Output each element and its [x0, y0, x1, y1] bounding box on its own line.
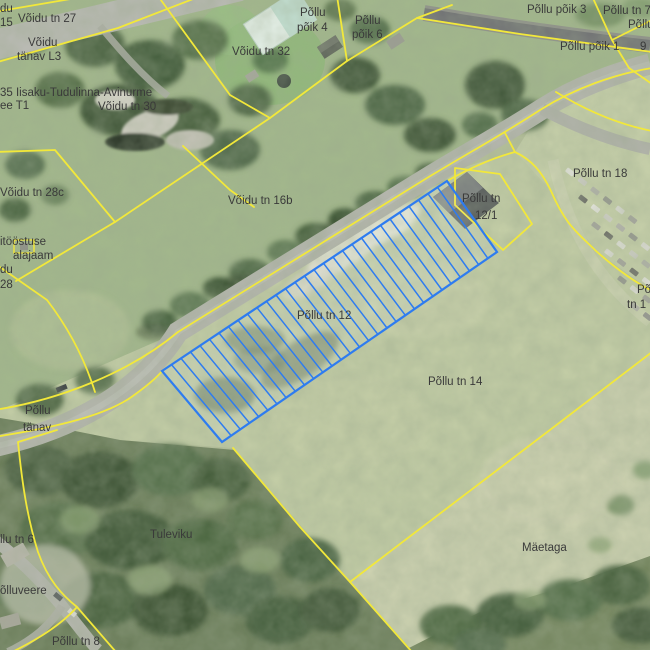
- map-viewport[interactable]: du15Võidu tn 27Võidutänav L335 Iisaku-Tu…: [0, 0, 650, 650]
- aerial-cadastral-map[interactable]: du15Võidu tn 27Võidutänav L335 Iisaku-Tu…: [0, 0, 650, 650]
- map-label: du: [0, 264, 13, 276]
- map-label: Põllu tn 7: [603, 5, 650, 17]
- map-label: 35 Iisaku-Tudulinna-Avinurme: [0, 87, 152, 99]
- map-label: Põllu: [25, 405, 51, 417]
- map-label: Põllu tn 8: [52, 636, 100, 648]
- map-label: Võidu tn 16b: [228, 195, 293, 207]
- map-label: põik 6: [352, 29, 383, 41]
- map-label: Põllu tn 14: [428, 376, 483, 388]
- map-label: Põllu tn 12: [297, 310, 351, 322]
- map-label: Mäetaga: [522, 542, 567, 554]
- map-label: Võidu tn 28c: [0, 187, 64, 199]
- map-label: Põllu põik 1: [560, 41, 619, 53]
- map-label: du: [0, 3, 13, 15]
- map-label: Tuleviku: [150, 529, 192, 541]
- map-label: llu tn 6: [0, 534, 34, 546]
- map-label: tänav L3: [17, 51, 61, 63]
- map-label: Võidu tn 30: [98, 101, 156, 113]
- map-label: Võidu tn 27: [18, 13, 76, 25]
- map-label: Põllu põik 3: [527, 4, 586, 16]
- map-label: Põllu tn: [462, 193, 500, 205]
- map-label: õlluveere: [0, 585, 47, 597]
- map-label: põik 4: [297, 22, 328, 34]
- map-label: Põllu: [300, 7, 326, 19]
- map-label: tänav: [23, 422, 51, 434]
- map-label: itööstuse: [0, 236, 46, 248]
- map-label: alajaam: [13, 250, 53, 262]
- map-label: Põ: [637, 284, 650, 296]
- map-label: Põllu: [355, 15, 381, 27]
- map-label: tn 1: [627, 299, 646, 311]
- map-label: Põllu tn 18: [573, 168, 627, 180]
- map-label: 12/1: [475, 210, 497, 222]
- map-label: 28: [0, 279, 13, 291]
- map-label: 9: [640, 41, 646, 53]
- map-label: Põllu: [628, 19, 650, 31]
- map-label: 15: [0, 17, 13, 29]
- map-label: ee T1: [0, 100, 29, 112]
- map-label: Võidu tn 32: [232, 46, 290, 58]
- map-label: Võidu: [28, 37, 57, 49]
